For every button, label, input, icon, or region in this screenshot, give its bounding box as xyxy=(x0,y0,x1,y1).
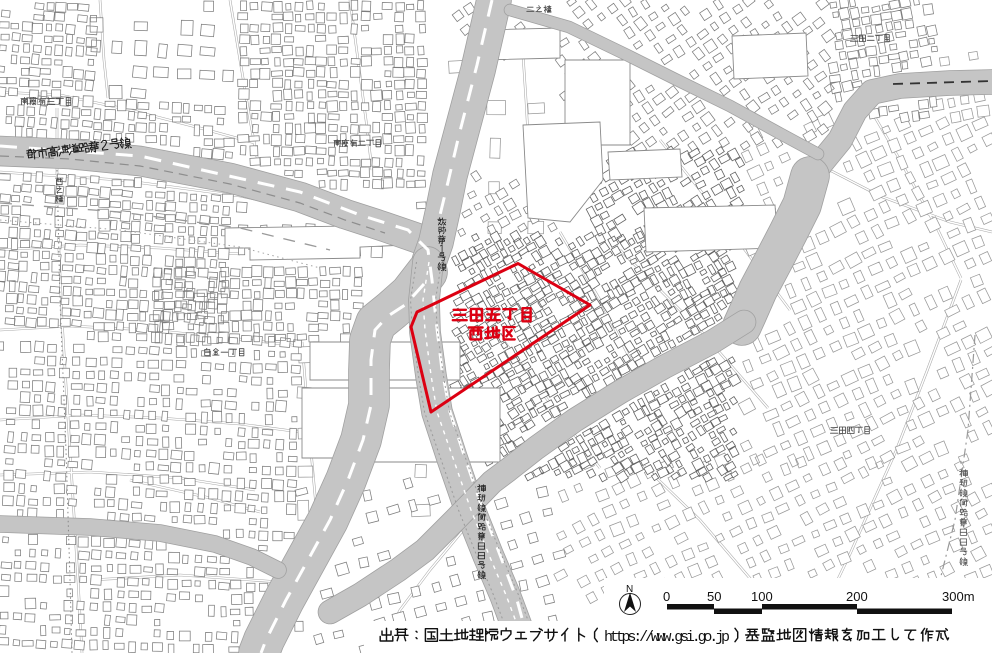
svg-text:300m: 300m xyxy=(942,589,975,604)
svg-text:https://www.gsi.go.jp: https://www.gsi.go.jp xyxy=(604,629,730,646)
svg-text:N: N xyxy=(626,584,633,595)
svg-text:0: 0 xyxy=(663,589,670,604)
svg-text:100: 100 xyxy=(751,589,773,604)
svg-text:200: 200 xyxy=(846,589,868,604)
svg-text:50: 50 xyxy=(707,589,721,604)
